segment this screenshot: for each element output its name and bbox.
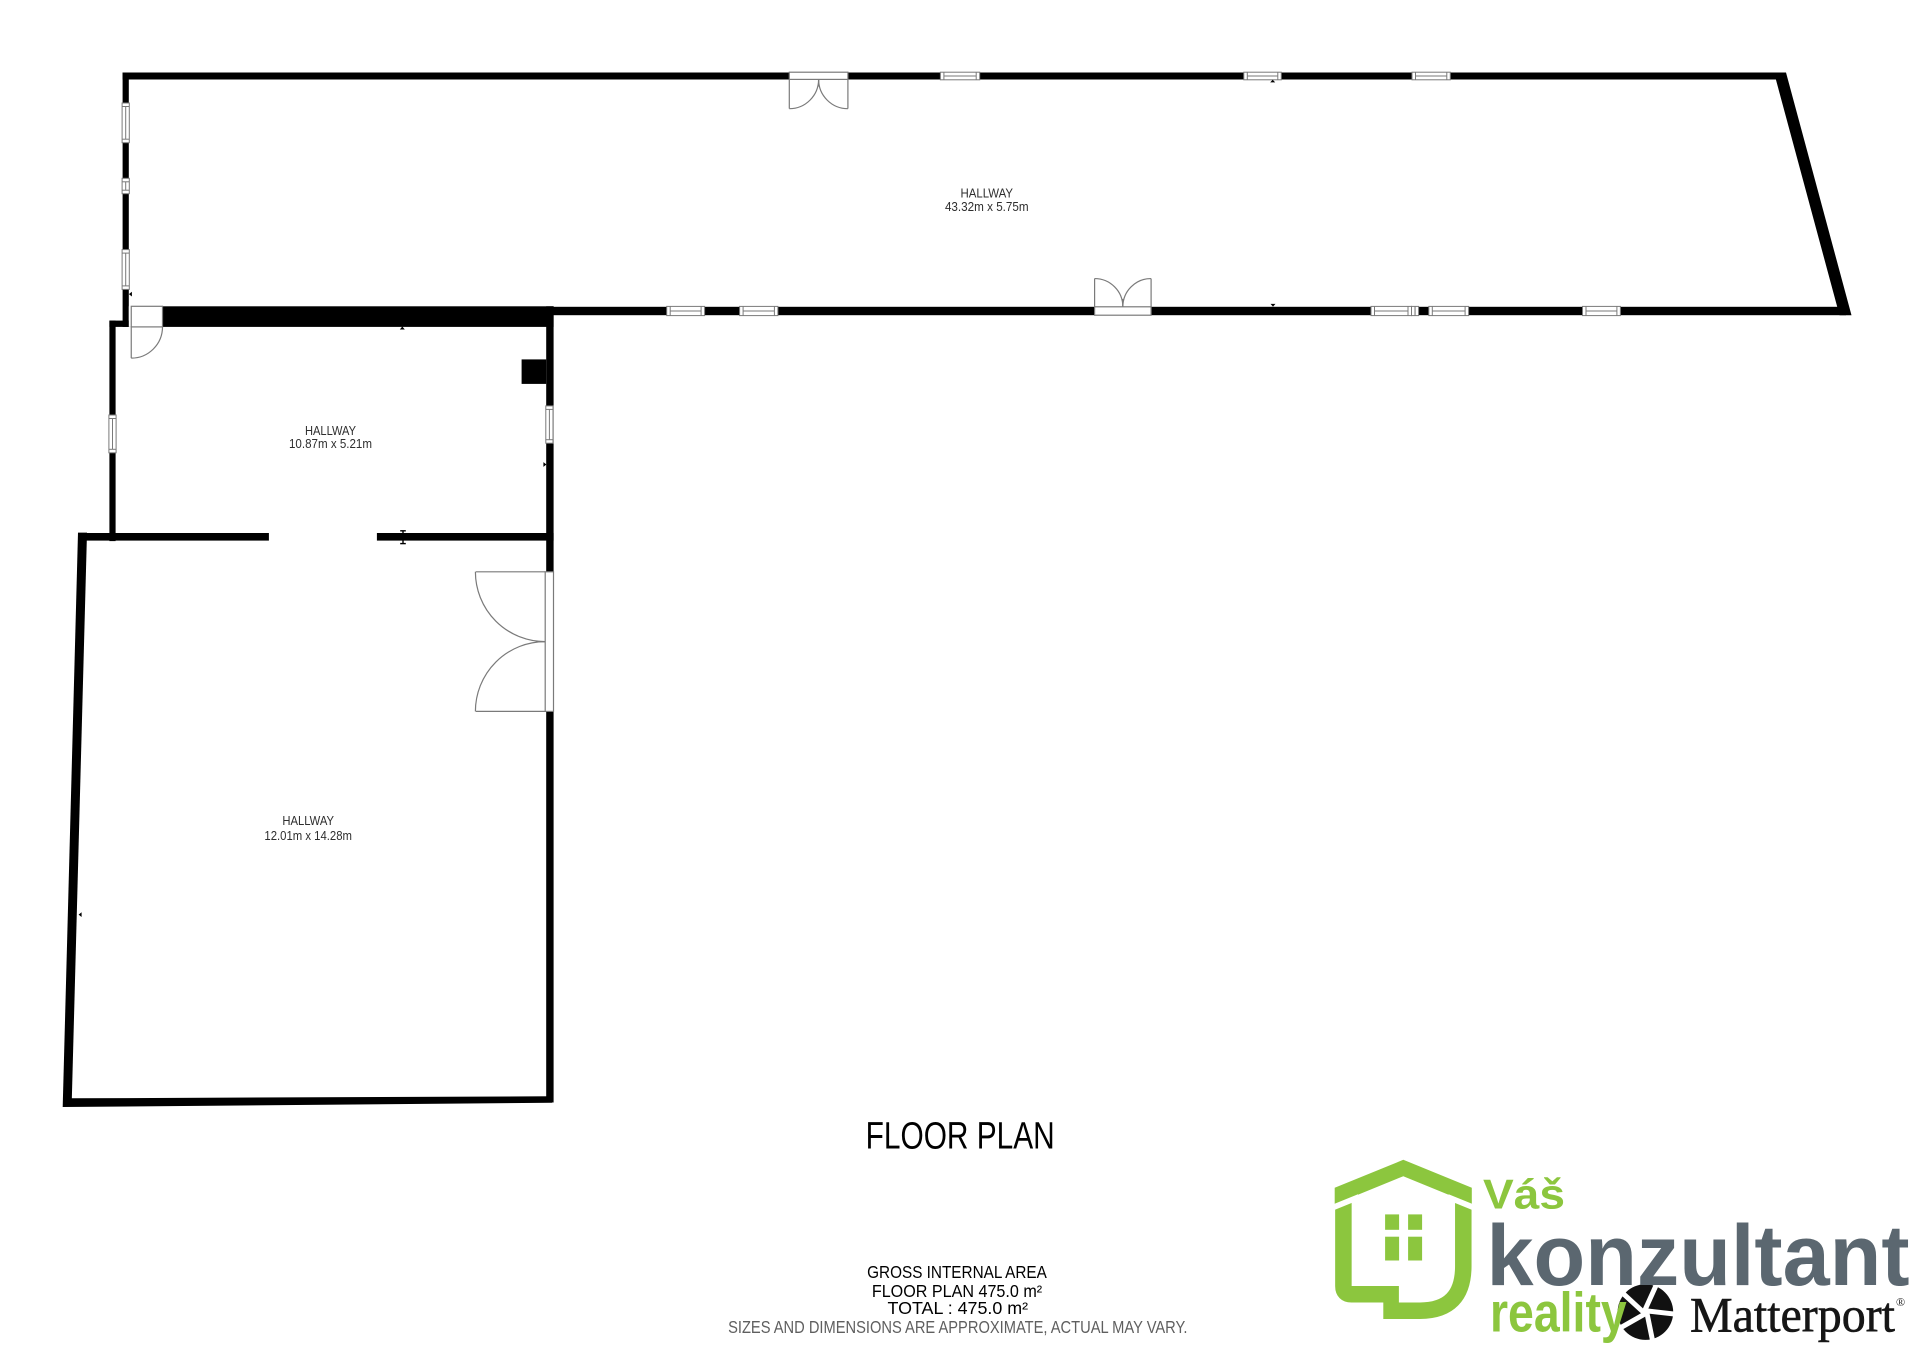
svg-text:Matterport: Matterport [1690, 1287, 1895, 1343]
svg-text:43.32m x 5.75m: 43.32m x 5.75m [945, 199, 1029, 214]
svg-text:HALLWAY: HALLWAY [961, 185, 1014, 200]
svg-text:GROSS INTERNAL AREA: GROSS INTERNAL AREA [867, 1262, 1047, 1282]
svg-text:®: ® [1896, 1295, 1905, 1309]
svg-text:TOTAL : 475.0 m²: TOTAL : 475.0 m² [888, 1298, 1029, 1318]
svg-text:reality: reality [1490, 1281, 1627, 1344]
svg-text:HALLWAY: HALLWAY [282, 813, 334, 828]
svg-text:FLOOR PLAN: FLOOR PLAN [866, 1115, 1055, 1157]
svg-text:SIZES AND DIMENSIONS ARE APPRO: SIZES AND DIMENSIONS ARE APPROXIMATE, AC… [728, 1317, 1187, 1337]
svg-text:10.87m x 5.21m: 10.87m x 5.21m [289, 436, 372, 451]
svg-text:12.01m x 14.28m: 12.01m x 14.28m [264, 828, 352, 843]
